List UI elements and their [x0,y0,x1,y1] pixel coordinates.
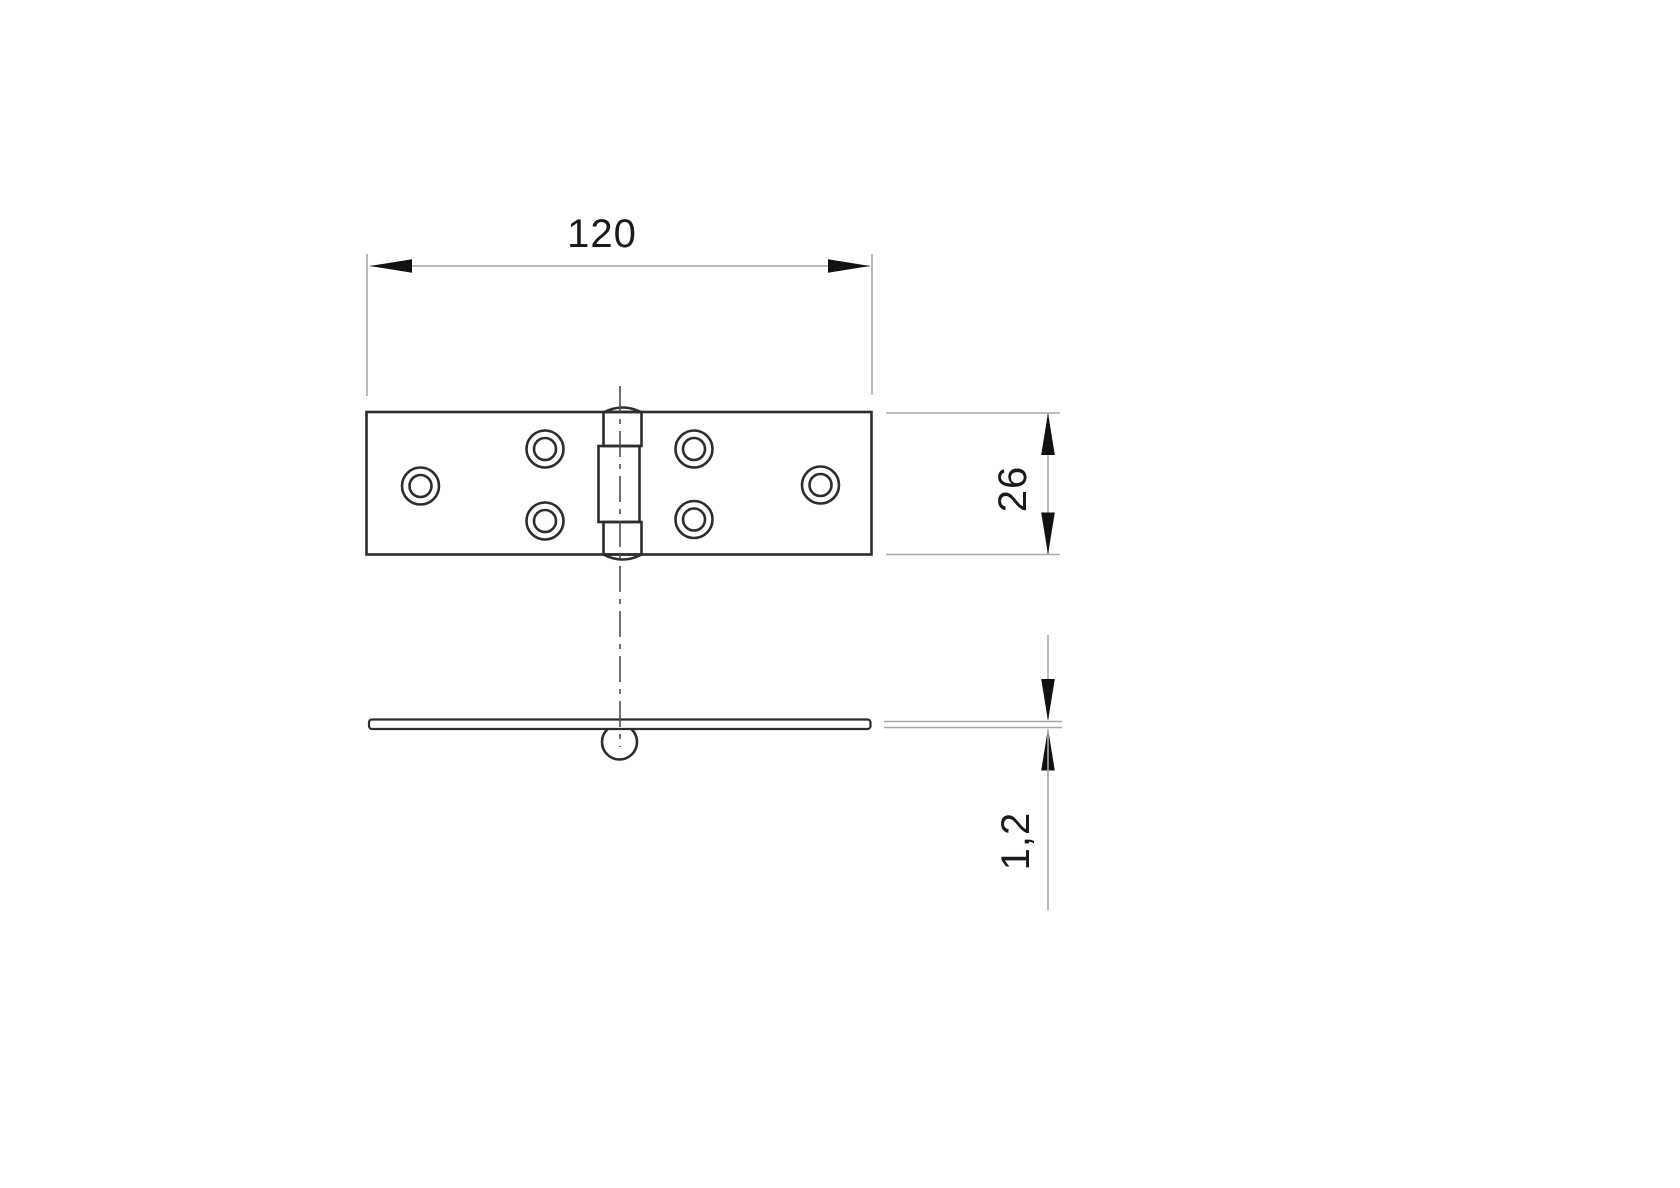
hinge-drawing: 120 [0,0,1680,1188]
dim-length: 120 [367,212,872,396]
dim-thickness-arrow-down-icon [1041,679,1055,721]
dim-thickness: 1,2 [884,635,1062,910]
dim-width-label: 26 [991,466,1035,513]
technical-drawing-canvas: 120 [0,0,1680,1188]
dim-length-arrow-right-icon [828,259,870,273]
hinge-top-view [367,408,872,560]
dim-width-arrow-down-icon [1041,513,1055,555]
hinge-leaf-plate [367,412,872,555]
dim-width-arrow-up-icon [1041,413,1055,455]
dim-length-arrow-left-icon [370,259,412,273]
dim-length-label: 120 [567,212,637,256]
dim-thickness-label: 1,2 [994,812,1038,871]
dim-width: 26 [886,413,1060,555]
